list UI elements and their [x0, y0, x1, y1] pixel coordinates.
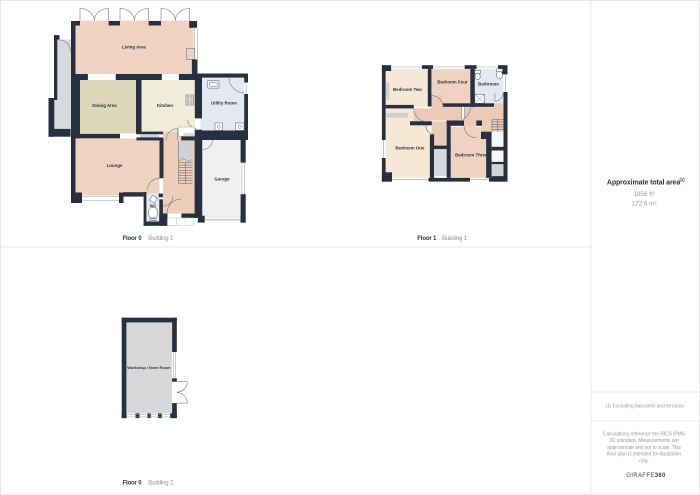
svg-text:Bedroom Two: Bedroom Two	[393, 87, 422, 92]
svg-text:3C standard. Measurements are: 3C standard. Measurements are	[609, 438, 679, 444]
svg-text:Dining Area: Dining Area	[92, 103, 117, 108]
svg-text:(1) Excluding balconies and te: (1) Excluding balconies and terraces	[605, 403, 684, 409]
svg-text:WC: WC	[150, 203, 157, 208]
svg-text:Garage: Garage	[214, 177, 230, 182]
svg-text:(1): (1)	[680, 177, 686, 182]
svg-text:floor plan is intended for ill: floor plan is intended for illustration	[607, 452, 681, 458]
svg-text:Bedroom Four: Bedroom Four	[437, 80, 468, 85]
svg-text:Calculations reference the RIC: Calculations reference the RICS IPMS	[603, 431, 686, 437]
svg-text:GIRAFFE360: GIRAFFE360	[626, 473, 666, 479]
svg-text:Approximate total area: Approximate total area	[607, 179, 680, 186]
svg-text:Bedroom One: Bedroom One	[395, 146, 425, 151]
svg-text:approximate and not to scale.: approximate and not to scale. This	[607, 445, 681, 451]
svg-text:172.6 m²: 172.6 m²	[632, 200, 658, 207]
svg-text:Workshop / Store Room: Workshop / Store Room	[127, 365, 171, 370]
svg-text:Bedroom Three: Bedroom Three	[455, 152, 488, 157]
svg-text:Building 1: Building 1	[442, 236, 468, 242]
svg-text:Utility Room: Utility Room	[211, 101, 237, 106]
svg-text:Floor 0: Floor 0	[123, 236, 143, 242]
svg-text:Floor 0: Floor 0	[123, 481, 143, 487]
svg-text:Bathroom: Bathroom	[478, 82, 499, 87]
svg-text:1856 ft²: 1856 ft²	[633, 191, 655, 198]
svg-text:Kitchen: Kitchen	[157, 103, 173, 108]
svg-text:Floor 1: Floor 1	[417, 236, 437, 242]
svg-text:only.: only.	[639, 459, 649, 465]
svg-text:Lounge: Lounge	[107, 163, 123, 168]
svg-text:Living Area: Living Area	[122, 45, 146, 50]
svg-text:Building 1: Building 1	[148, 236, 174, 242]
svg-text:Building 2: Building 2	[148, 481, 174, 487]
